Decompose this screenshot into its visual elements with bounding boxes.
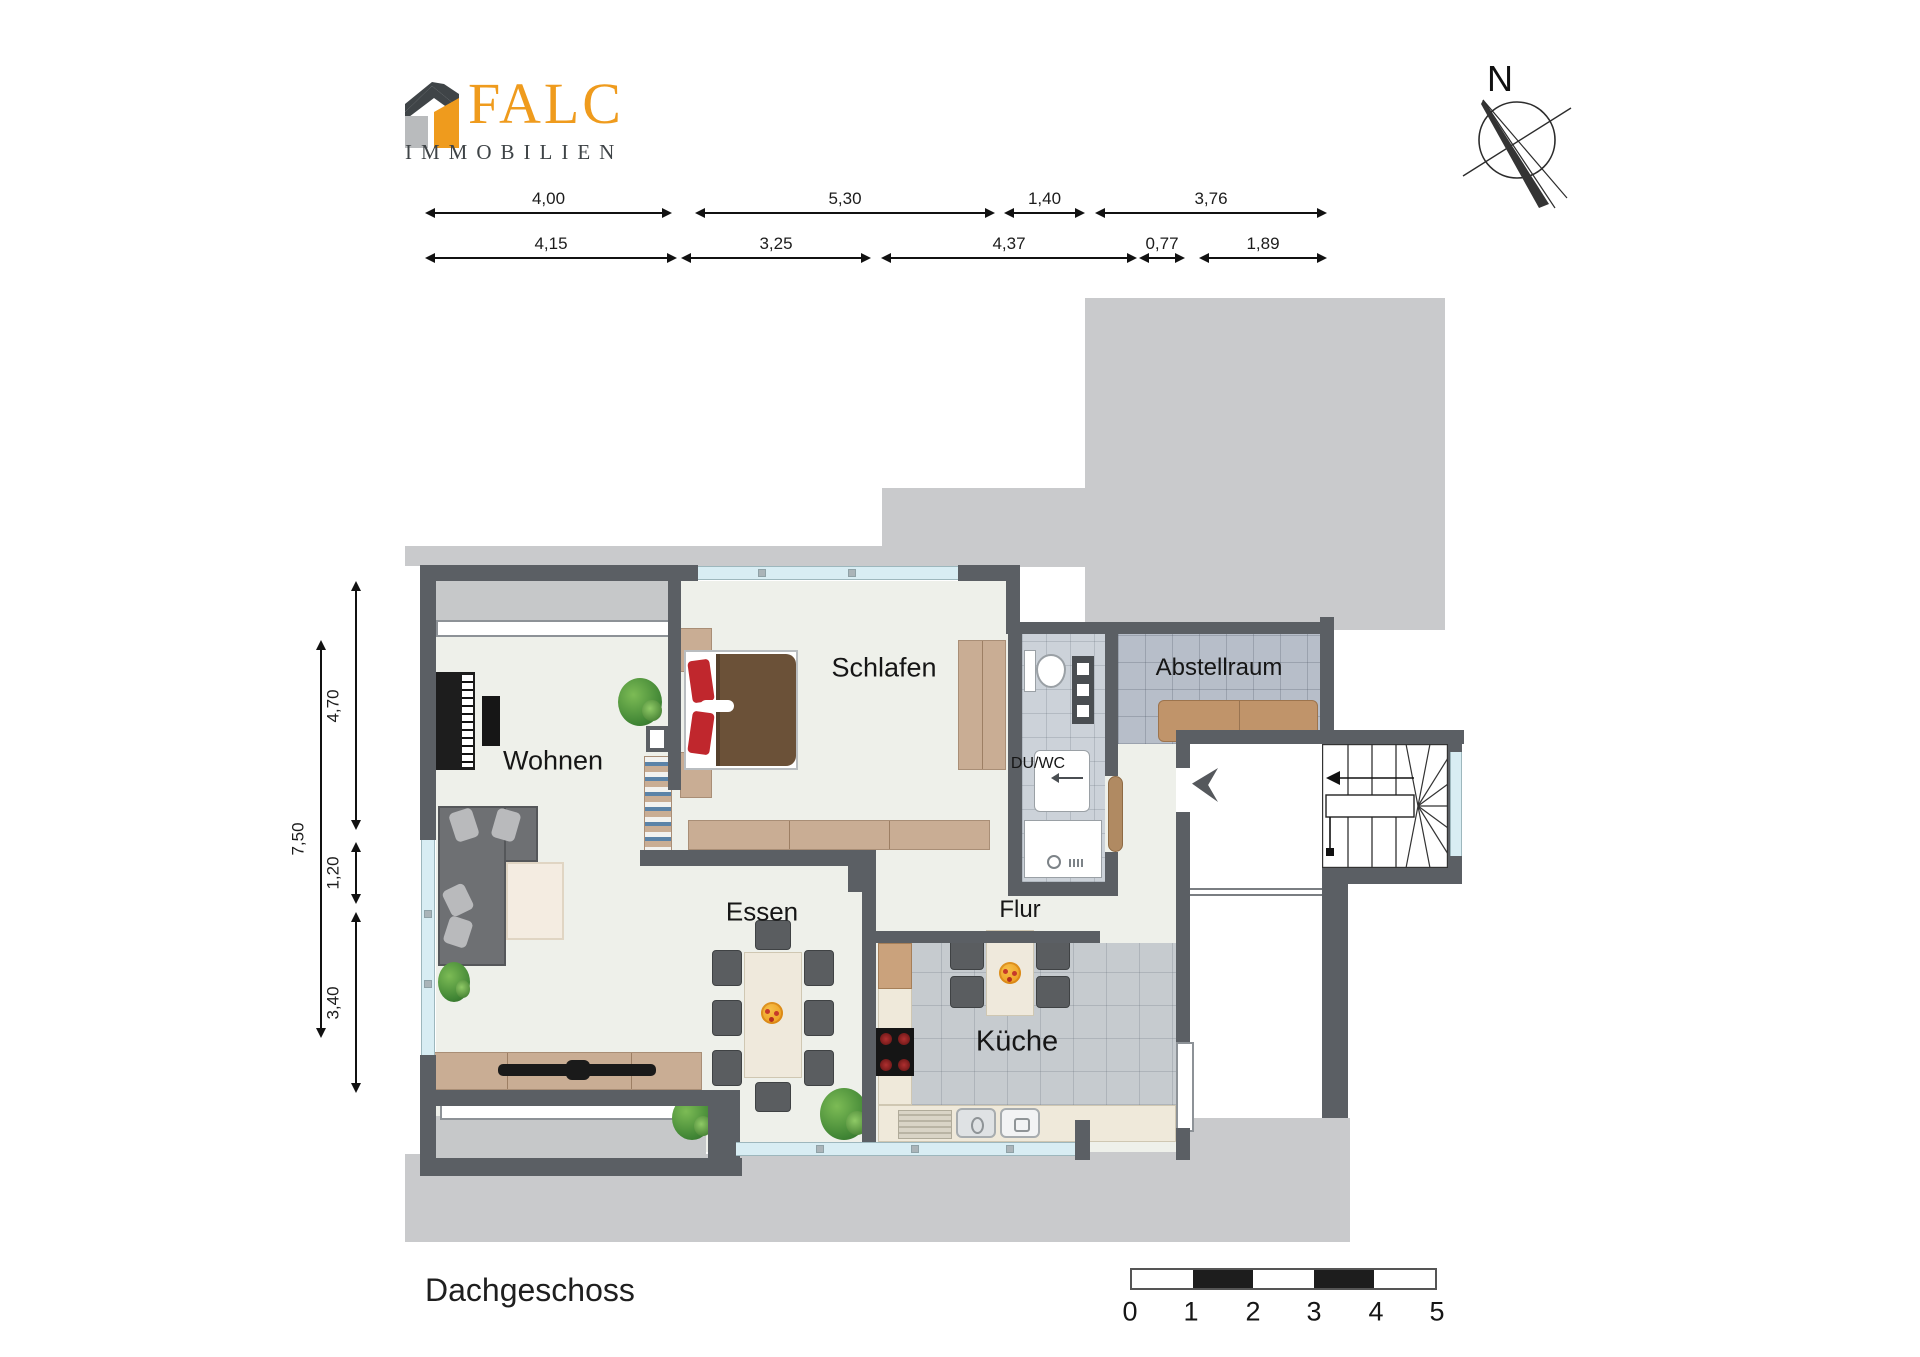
brand-subtitle: IMMOBILIEN xyxy=(405,140,623,165)
roof-block-top-right xyxy=(1085,298,1445,630)
wall xyxy=(1176,812,1190,1042)
bathroom-door-leaf xyxy=(1108,776,1123,852)
rug xyxy=(506,862,564,940)
window-north xyxy=(698,566,958,580)
dimension: 1,40 xyxy=(1004,207,1085,219)
dimension: 0,77 xyxy=(1139,252,1185,264)
scale-tick: 2 xyxy=(1245,1297,1260,1328)
plant-icon xyxy=(820,1088,868,1140)
window-south xyxy=(736,1142,1075,1156)
kitchen-sink-right xyxy=(1000,1108,1040,1138)
kitchen-cutting-board xyxy=(878,943,912,989)
dining-chair xyxy=(804,1050,834,1086)
plant-icon xyxy=(618,678,662,726)
wall xyxy=(1008,882,1118,896)
wall-niche xyxy=(646,726,668,752)
scale-tick: 3 xyxy=(1306,1297,1321,1328)
radiator-icon xyxy=(1072,656,1094,724)
bed-sheet-fold xyxy=(700,700,734,712)
wall xyxy=(420,565,436,840)
dormer-recess-north xyxy=(436,581,668,622)
dimension: 3,25 xyxy=(681,252,871,264)
dimension: 3,40 xyxy=(350,912,362,1093)
wall xyxy=(668,581,681,790)
wall xyxy=(1006,622,1334,634)
dining-chair xyxy=(804,1000,834,1036)
dormer-recess-south xyxy=(436,1116,706,1158)
compass-rose-icon xyxy=(1455,58,1625,218)
scale-tick: 0 xyxy=(1122,1297,1137,1328)
compass: N xyxy=(1455,58,1625,218)
room-label-duwc: DU/WC xyxy=(1011,755,1065,773)
wall xyxy=(1075,1120,1090,1160)
roof-strip-top-left xyxy=(405,546,882,566)
room-label-kueche: Küche xyxy=(976,1026,1058,1059)
wall xyxy=(420,565,698,581)
piano-bench xyxy=(482,696,500,746)
dormer-window-north xyxy=(436,620,672,637)
staircase-icon xyxy=(1322,744,1448,868)
dining-chair xyxy=(712,1050,742,1086)
shower-tray-icon xyxy=(1024,820,1102,878)
dining-chair xyxy=(755,1082,791,1112)
wall xyxy=(420,1090,436,1176)
room-label-schlafen: Schlafen xyxy=(831,653,936,684)
scale-tick: 5 xyxy=(1429,1297,1444,1328)
railing xyxy=(1190,888,1322,896)
kitchen-chair xyxy=(1036,976,1070,1008)
room-label-essen: Essen xyxy=(726,897,798,928)
wall xyxy=(420,1090,740,1106)
wardrobe-tall xyxy=(958,640,1006,770)
dining-chair xyxy=(712,950,742,986)
wall xyxy=(876,931,1100,943)
dining-chair xyxy=(712,1000,742,1036)
falc-logo: FALC IMMOBILIEN xyxy=(404,78,704,170)
brand-name: FALC xyxy=(468,70,624,137)
dimension: 1,89 xyxy=(1199,252,1327,264)
wall xyxy=(1322,884,1348,1118)
wall xyxy=(1322,868,1462,884)
dimension: 1,20 xyxy=(350,842,362,904)
wall xyxy=(1176,1128,1190,1160)
wall xyxy=(1176,730,1464,744)
kitchen-chair xyxy=(950,976,984,1008)
tv-stand xyxy=(566,1060,590,1080)
floor-title: Dachgeschoss xyxy=(425,1272,635,1309)
bedroom-sideboard xyxy=(688,820,990,850)
scale-tick: 1 xyxy=(1183,1297,1198,1328)
room-label-abstellraum: Abstellraum xyxy=(1156,654,1283,682)
kitchen-sink-left xyxy=(956,1108,996,1138)
toilet-tank xyxy=(1024,650,1036,692)
stair-window xyxy=(1450,752,1462,856)
scale-tick: 4 xyxy=(1368,1297,1383,1328)
dining-chair xyxy=(804,950,834,986)
dimension: 4,00 xyxy=(425,207,672,219)
roof-notch-mid xyxy=(882,488,1085,567)
window-east xyxy=(1176,1042,1194,1132)
plant-icon xyxy=(438,962,470,1002)
wall xyxy=(1105,634,1118,776)
wall xyxy=(708,1090,740,1176)
entrance-arrow-icon xyxy=(1192,768,1218,802)
dimension: 4,70 xyxy=(350,581,362,830)
wall xyxy=(1105,852,1118,882)
room-label-flur: Flur xyxy=(999,896,1040,924)
window-west xyxy=(421,840,435,1055)
dimension: 4,37 xyxy=(881,252,1137,264)
fruit-bowl-icon xyxy=(761,1002,783,1024)
wall xyxy=(1176,744,1190,768)
piano-icon xyxy=(433,672,475,770)
wall xyxy=(862,858,876,1150)
kitchen-stove-icon xyxy=(876,1028,914,1076)
wall xyxy=(1320,617,1334,744)
dimension: 3,76 xyxy=(1095,207,1327,219)
scale-bar: 0 1 2 3 4 5 xyxy=(1130,1268,1438,1326)
kitchen-dishwasher-icon xyxy=(898,1110,952,1139)
dimension: 4,15 xyxy=(425,252,677,264)
wall xyxy=(640,850,876,866)
wall xyxy=(420,1158,742,1176)
room-label-wohnen: Wohnen xyxy=(503,746,603,777)
dimension: 5,30 xyxy=(695,207,995,219)
floor-plan-page: FALC IMMOBILIEN N xyxy=(0,0,1920,1357)
fruit-bowl-icon xyxy=(999,962,1021,984)
